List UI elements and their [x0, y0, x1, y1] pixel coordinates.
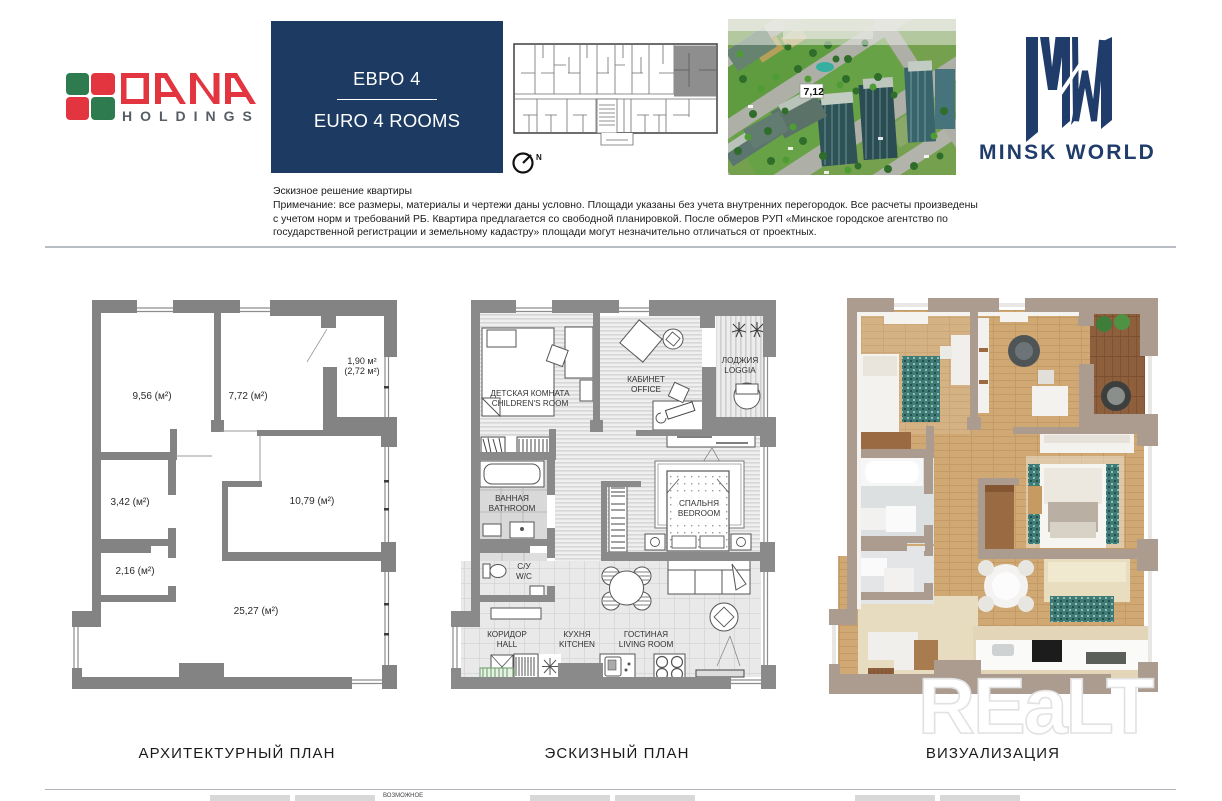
svg-text:(2,72 м²): (2,72 м²) [344, 366, 379, 376]
svg-text:W/C: W/C [516, 572, 532, 581]
svg-text:OFFICE: OFFICE [631, 385, 662, 394]
svg-text:25,27 (м²): 25,27 (м²) [234, 606, 279, 617]
svg-text:LIVING ROOM: LIVING ROOM [619, 640, 674, 649]
svg-text:9,56 (м²): 9,56 (м²) [132, 391, 171, 402]
svg-text:ЛОДЖИЯ: ЛОДЖИЯ [722, 356, 759, 365]
svg-text:N: N [536, 153, 542, 162]
svg-text:LOGGIA: LOGGIA [724, 366, 756, 375]
svg-text:ГОСТИНАЯ: ГОСТИНАЯ [624, 630, 668, 639]
svg-text:HOLDINGS: HOLDINGS [122, 108, 260, 123]
svg-text:MINSK WORLD: MINSK WORLD [979, 141, 1156, 159]
svg-text:С/У: С/У [517, 562, 531, 571]
svg-text:HALL: HALL [497, 640, 518, 649]
svg-text:ДЕТСКАЯ КОМНАТА: ДЕТСКАЯ КОМНАТА [490, 389, 570, 398]
svg-text:СПАЛЬНЯ: СПАЛЬНЯ [679, 499, 719, 508]
svg-text:KITCHEN: KITCHEN [559, 640, 595, 649]
svg-text:CHILDREN'S ROOM: CHILDREN'S ROOM [492, 399, 569, 408]
svg-text:1,90 м²: 1,90 м² [347, 356, 376, 366]
svg-text:7,72 (м²): 7,72 (м²) [228, 391, 267, 402]
svg-text:10,79 (м²): 10,79 (м²) [290, 496, 335, 507]
svg-text:КАБИНЕТ: КАБИНЕТ [627, 375, 665, 384]
svg-text:7,12: 7,12 [804, 86, 825, 98]
svg-text:3,42 (м²): 3,42 (м²) [110, 497, 149, 508]
svg-text:2,16 (м²): 2,16 (м²) [115, 566, 154, 577]
svg-text:BATHROOM: BATHROOM [489, 504, 536, 513]
svg-text:КУХНЯ: КУХНЯ [563, 630, 590, 639]
svg-text:ВАННАЯ: ВАННАЯ [495, 494, 529, 503]
svg-text:BEDROOM: BEDROOM [678, 509, 720, 518]
svg-text:КОРИДОР: КОРИДОР [487, 630, 527, 639]
